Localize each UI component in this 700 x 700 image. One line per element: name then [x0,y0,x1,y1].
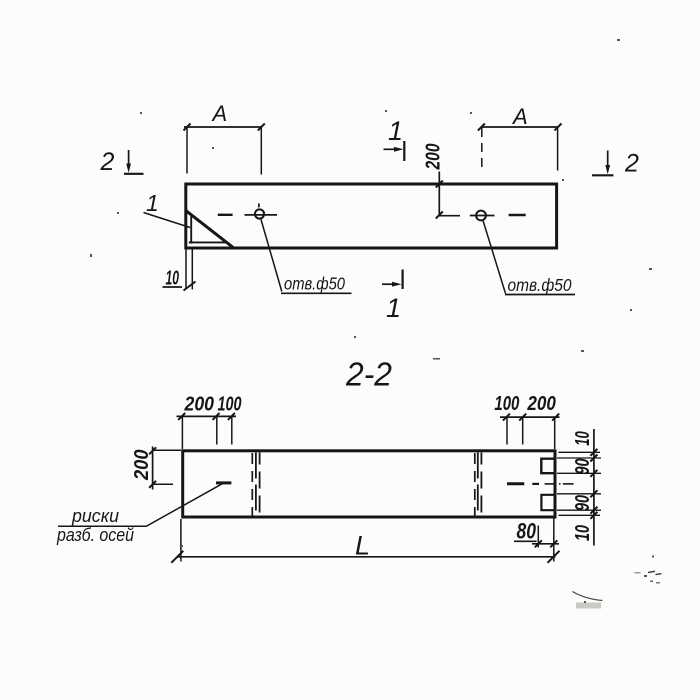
svg-text:разб. осей: разб. осей [56,525,134,545]
svg-text:100: 100 [218,394,242,416]
svg-text:отв.ф50: отв.ф50 [284,274,345,294]
svg-text:1: 1 [388,116,403,146]
svg-text:1: 1 [146,190,159,216]
svg-text:200: 200 [423,144,445,171]
svg-text:2: 2 [100,148,115,176]
svg-text:отв.ф50: отв.ф50 [508,275,572,295]
svg-text:90: 90 [572,459,594,475]
svg-text:200: 200 [527,393,556,415]
svg-text:1: 1 [386,293,401,323]
svg-text:L: L [355,531,370,561]
svg-text:10: 10 [572,431,594,446]
svg-text:100: 100 [494,393,519,415]
svg-text:80: 80 [517,519,537,544]
svg-text:2: 2 [624,150,639,178]
svg-text:200: 200 [184,394,214,416]
svg-text:риски: риски [71,506,119,526]
svg-text:A: A [511,104,528,129]
svg-text:200: 200 [131,450,153,481]
svg-text:A: A [211,101,228,126]
svg-text:10: 10 [572,525,594,541]
svg-text:2-2: 2-2 [345,356,392,393]
svg-text:90: 90 [572,495,594,511]
svg-text:10: 10 [166,267,180,289]
